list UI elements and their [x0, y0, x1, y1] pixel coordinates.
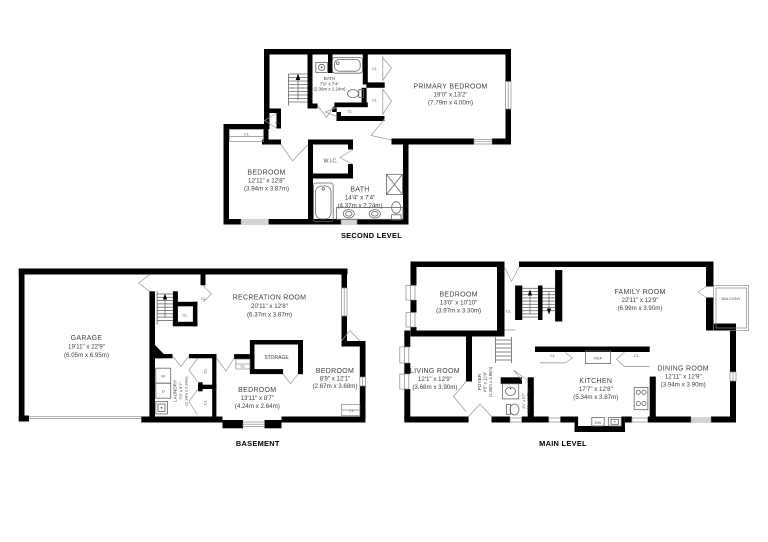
- svg-text:D: D: [162, 389, 165, 394]
- svg-text:KITCHEN: KITCHEN: [579, 378, 612, 385]
- svg-text:DW: DW: [595, 420, 602, 425]
- svg-text:(2.14m x 2.93m): (2.14m x 2.93m): [184, 376, 189, 406]
- svg-text:CL: CL: [372, 98, 378, 103]
- svg-text:BEDROOM: BEDROOM: [316, 368, 354, 375]
- svg-text:(3.94m x 3.90m): (3.94m x 3.90m): [661, 382, 706, 389]
- svg-text:BEDROOM: BEDROOM: [439, 292, 477, 299]
- svg-text:REF: REF: [594, 356, 603, 361]
- svg-text:FAMILY ROOM: FAMILY ROOM: [614, 289, 665, 296]
- svg-text:MAIN LEVEL: MAIN LEVEL: [539, 439, 587, 448]
- svg-text:(7.79m x 4.00m): (7.79m x 4.00m): [428, 100, 473, 107]
- svg-text:(4.37m x 2.24m): (4.37m x 2.24m): [337, 203, 382, 210]
- svg-text:22'11" x 12'9": 22'11" x 12'9": [622, 297, 659, 304]
- svg-text:CL: CL: [244, 132, 250, 137]
- svg-text:BATH: BATH: [324, 76, 335, 81]
- svg-text:(5.34m x 3.87m): (5.34m x 3.87m): [573, 394, 618, 401]
- svg-text:CL: CL: [550, 353, 556, 358]
- svg-text:RECREATION ROOM: RECREATION ROOM: [233, 295, 307, 302]
- svg-text:(3.97m x 3.30m): (3.97m x 3.30m): [436, 308, 481, 315]
- svg-text:BALCONY: BALCONY: [721, 296, 740, 301]
- svg-text:(4.24m x 2.64m): (4.24m x 2.64m): [235, 403, 280, 410]
- svg-text:19'11" x 22'9": 19'11" x 22'9": [68, 344, 105, 351]
- svg-text:12'11" x 12'9": 12'11" x 12'9": [665, 374, 702, 381]
- svg-text:13'11" x 8'7": 13'11" x 8'7": [241, 395, 274, 402]
- svg-text:(3.94m x 3.87m): (3.94m x 3.87m): [244, 186, 289, 193]
- svg-text:20'11" x 12'8": 20'11" x 12'8": [251, 303, 288, 310]
- svg-text:8'9" x 12'1": 8'9" x 12'1": [320, 376, 351, 383]
- svg-text:BEDROOM: BEDROOM: [247, 170, 285, 177]
- svg-text:14'4" x 7'4": 14'4" x 7'4": [345, 195, 376, 202]
- svg-text:CL: CL: [372, 66, 378, 71]
- svg-text:12'11" x 12'8": 12'11" x 12'8": [248, 178, 285, 185]
- svg-text:(1.24m x 1.71m): (1.24m x 1.71m): [526, 389, 530, 414]
- svg-text:(6.05m x 6.95m): (6.05m x 6.95m): [64, 352, 109, 359]
- svg-text:12'1" x 12'9": 12'1" x 12'9": [418, 376, 452, 383]
- svg-text:LIVING ROOM: LIVING ROOM: [410, 368, 460, 375]
- svg-text:PRIMARY BEDROOM: PRIMARY BEDROOM: [413, 84, 487, 91]
- svg-text:4'5" x 12'9": 4'5" x 12'9": [483, 371, 488, 392]
- svg-text:LAUNDRY: LAUNDRY: [173, 380, 178, 402]
- svg-text:19'0" x 13'2": 19'0" x 13'2": [434, 92, 468, 99]
- svg-text:(6.37m x 3.87m): (6.37m x 3.87m): [247, 312, 292, 319]
- svg-text:W.I.C.: W.I.C.: [323, 159, 337, 165]
- svg-text:CL: CL: [203, 399, 208, 405]
- svg-text:STORAGE: STORAGE: [264, 355, 289, 361]
- svg-text:(2.67m x 3.68m): (2.67m x 3.68m): [312, 383, 357, 390]
- svg-text:CL: CL: [201, 296, 207, 301]
- svg-text:BASEMENT: BASEMENT: [236, 439, 280, 448]
- svg-text:13'0" x 10'10": 13'0" x 10'10": [440, 300, 477, 307]
- svg-text:BEDROOM: BEDROOM: [238, 387, 276, 394]
- svg-text:(6.99m x 3.90m): (6.99m x 3.90m): [617, 305, 662, 312]
- svg-text:CL: CL: [240, 364, 246, 369]
- svg-text:CL: CL: [182, 313, 188, 318]
- svg-text:CL: CL: [275, 120, 281, 125]
- svg-text:(2.36m x 2.24m): (2.36m x 2.24m): [314, 87, 347, 92]
- svg-text:CL: CL: [347, 109, 353, 114]
- svg-text:4'1" x 5'7": 4'1" x 5'7": [522, 392, 526, 408]
- svg-text:CL: CL: [349, 408, 355, 413]
- svg-text:DINING ROOM: DINING ROOM: [657, 366, 709, 373]
- svg-text:(1.40m x 3.90m): (1.40m x 3.90m): [488, 366, 493, 397]
- svg-text:17'7" x 12'8": 17'7" x 12'8": [579, 386, 613, 393]
- svg-text:SECOND LEVEL: SECOND LEVEL: [341, 231, 402, 240]
- svg-text:7'0" x 9'7": 7'0" x 9'7": [178, 382, 183, 400]
- svg-text:CL: CL: [203, 368, 208, 374]
- svg-text:CL: CL: [634, 353, 640, 358]
- svg-text:(3.68m x 3.90m): (3.68m x 3.90m): [412, 384, 457, 391]
- svg-text:W: W: [161, 374, 165, 379]
- svg-text:GARAGE: GARAGE: [71, 335, 103, 342]
- svg-text:BATH: BATH: [350, 187, 369, 194]
- svg-text:CL: CL: [506, 309, 512, 314]
